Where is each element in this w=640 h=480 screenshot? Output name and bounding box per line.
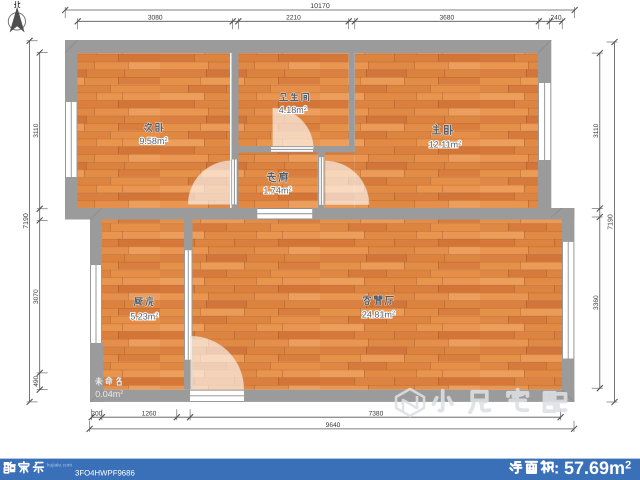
- svg-text:10170: 10170: [310, 3, 330, 10]
- svg-text:7190: 7190: [608, 214, 615, 230]
- svg-text:24.81m2: 24.81m2: [362, 310, 395, 320]
- svg-text:12.11m2: 12.11m2: [429, 140, 461, 150]
- svg-text:3070: 3070: [33, 289, 40, 304]
- svg-text:200: 200: [91, 410, 102, 417]
- svg-text:3680: 3680: [439, 15, 454, 22]
- svg-text:1260: 1260: [142, 410, 157, 417]
- svg-text:57.69m2: 57.69m2: [564, 458, 631, 478]
- svg-text:7380: 7380: [369, 410, 384, 417]
- svg-text:7190: 7190: [23, 213, 30, 229]
- svg-text:3110: 3110: [33, 123, 40, 138]
- svg-text:240: 240: [550, 15, 561, 22]
- svg-text:3080: 3080: [148, 15, 163, 22]
- svg-text:0.04m2: 0.04m2: [95, 389, 123, 399]
- svg-text:1.74m2: 1.74m2: [263, 186, 291, 196]
- svg-text:2210: 2210: [286, 15, 301, 22]
- svg-text:4.18m2: 4.18m2: [279, 105, 307, 115]
- svg-text:490: 490: [33, 375, 40, 386]
- svg-text:3FO4HWPF9686: 3FO4HWPF9686: [75, 469, 135, 478]
- svg-text:3360: 3360: [593, 295, 600, 310]
- svg-text:kujiale.com: kujiale.com: [47, 463, 72, 469]
- svg-text:5.23m2: 5.23m2: [130, 312, 158, 322]
- svg-text:9640: 9640: [326, 422, 341, 429]
- svg-text:9.58m2: 9.58m2: [139, 136, 167, 146]
- svg-text::: :: [554, 461, 559, 478]
- svg-text:3110: 3110: [593, 123, 600, 138]
